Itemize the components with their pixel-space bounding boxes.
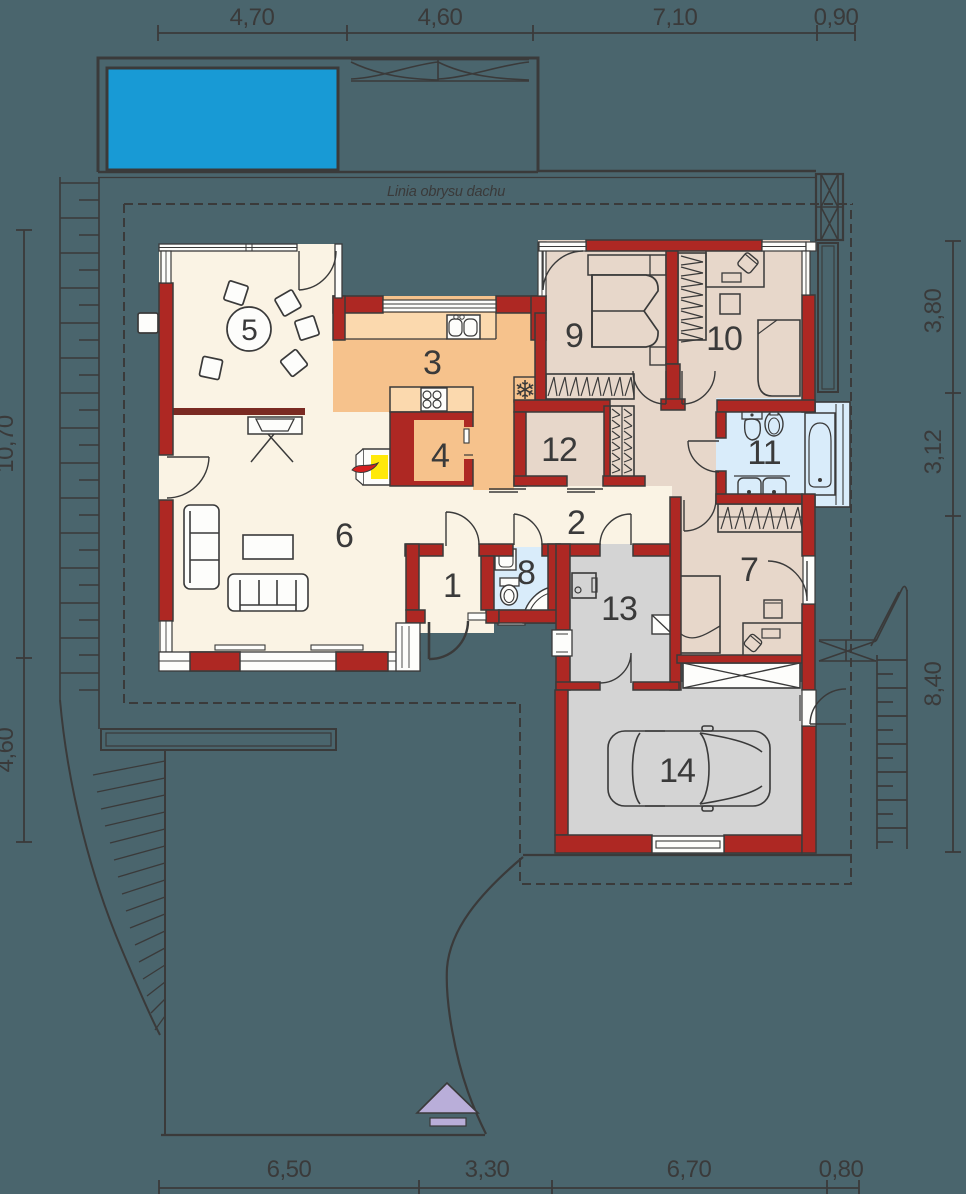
svg-text:10: 10 (706, 320, 742, 358)
svg-text:7,10: 7,10 (653, 4, 698, 31)
svg-text:11: 11 (747, 434, 780, 472)
svg-text:6: 6 (335, 517, 353, 555)
svg-text:8,40: 8,40 (920, 661, 947, 706)
svg-text:8: 8 (517, 554, 535, 592)
svg-text:5: 5 (241, 314, 257, 347)
svg-text:12: 12 (541, 431, 577, 469)
svg-text:10,70: 10,70 (0, 415, 19, 473)
svg-text:14: 14 (659, 752, 695, 790)
svg-text:0,90: 0,90 (814, 4, 859, 31)
svg-text:2: 2 (567, 504, 585, 542)
svg-text:3,80: 3,80 (920, 288, 947, 333)
svg-text:4,70: 4,70 (230, 4, 275, 31)
svg-text:0,80: 0,80 (819, 1156, 864, 1183)
svg-text:4,60: 4,60 (418, 4, 463, 31)
svg-text:4: 4 (431, 437, 449, 475)
svg-text:9: 9 (565, 317, 583, 355)
svg-text:3,12: 3,12 (920, 429, 947, 474)
svg-text:Linia obrysu dachu: Linia obrysu dachu (387, 184, 505, 200)
svg-text:3: 3 (423, 344, 441, 382)
svg-text:7: 7 (740, 551, 758, 589)
svg-text:1: 1 (443, 567, 461, 605)
svg-text:4,60: 4,60 (0, 727, 19, 772)
svg-text:6,70: 6,70 (667, 1156, 712, 1183)
svg-text:6,50: 6,50 (267, 1156, 312, 1183)
svg-text:13: 13 (601, 590, 637, 628)
svg-text:3,30: 3,30 (465, 1156, 510, 1183)
